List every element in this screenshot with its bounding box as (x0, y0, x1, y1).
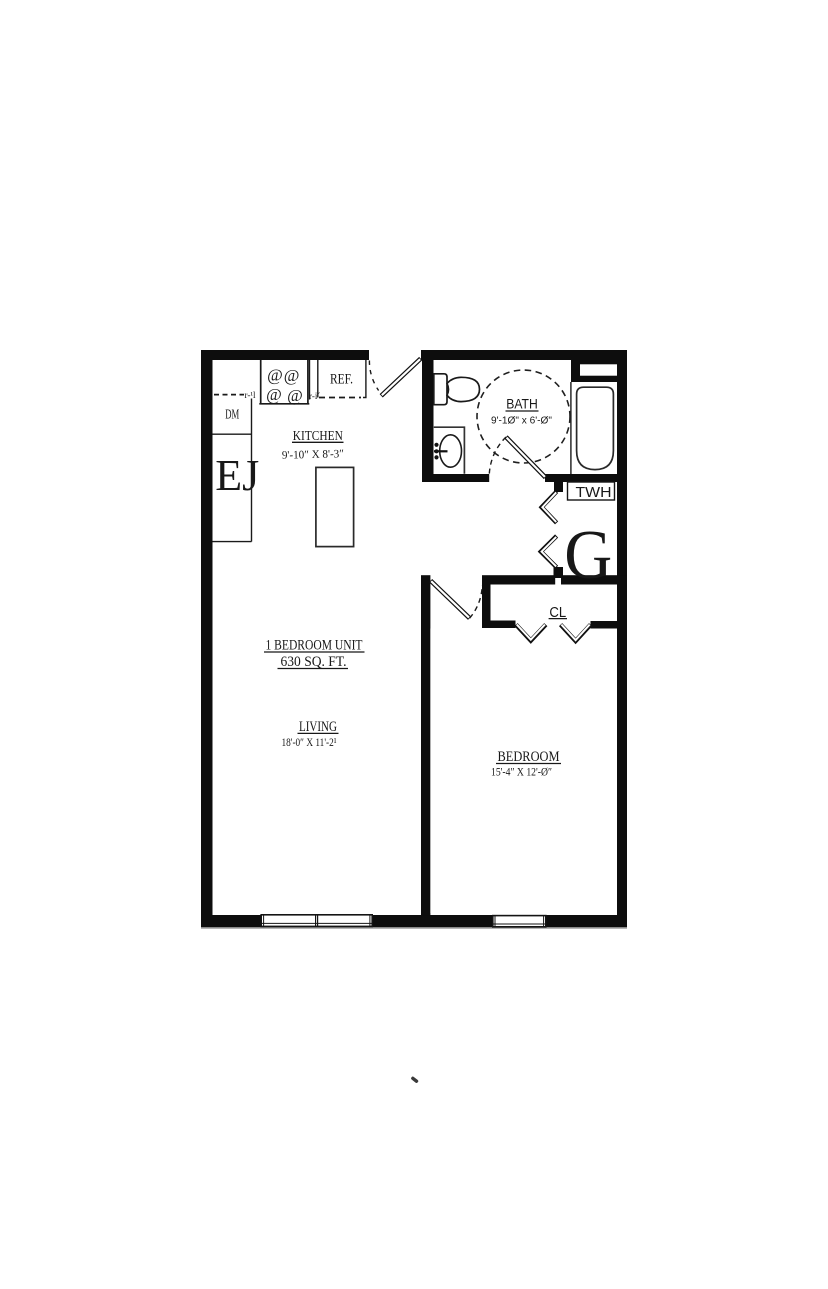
svg-text:@: @ (284, 366, 300, 385)
svg-text:@: @ (287, 386, 303, 405)
svg-text:9'-10″ X 8'-3″: 9'-10″ X 8'-3″ (282, 448, 344, 462)
svg-text:@: @ (267, 366, 283, 385)
svg-text:@: @ (266, 385, 282, 404)
svg-text:15'-4″ X 12'-Ø″: 15'-4″ X 12'-Ø″ (491, 767, 552, 779)
svg-text:r-i´: r-i´ (309, 391, 320, 401)
svg-text:REF.: REF. (330, 372, 353, 388)
svg-text:9'-1Ø" x 6'-Ø": 9'-1Ø" x 6'-Ø" (491, 416, 552, 427)
svg-text:630 SQ. FT.: 630 SQ. FT. (281, 654, 347, 670)
svg-text:G: G (564, 517, 612, 594)
svg-text:r-¹l: r-¹l (245, 390, 257, 400)
svg-text:TWH: TWH (576, 485, 612, 501)
svg-text:BATH: BATH (506, 397, 538, 412)
svg-text:DM: DM (225, 407, 239, 422)
svg-text:LIVING: LIVING (299, 719, 337, 735)
svg-text:1 BEDROOM UNIT: 1 BEDROOM UNIT (266, 638, 363, 654)
svg-text:EJ: EJ (215, 451, 259, 500)
svg-text:18'-0″ X 11'-2¹: 18'-0″ X 11'-2¹ (282, 737, 337, 749)
svg-text:BEDROOM: BEDROOM (498, 749, 560, 765)
